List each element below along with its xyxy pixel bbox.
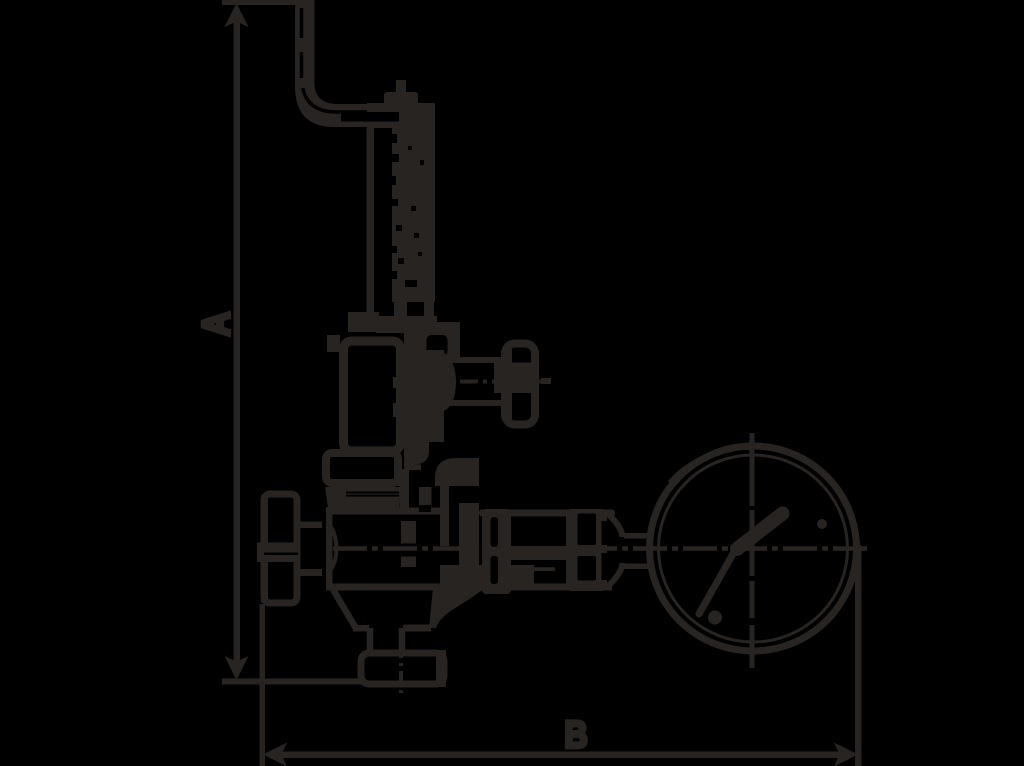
svg-text:A: A xyxy=(195,312,237,336)
svg-text:B: B xyxy=(564,714,587,756)
